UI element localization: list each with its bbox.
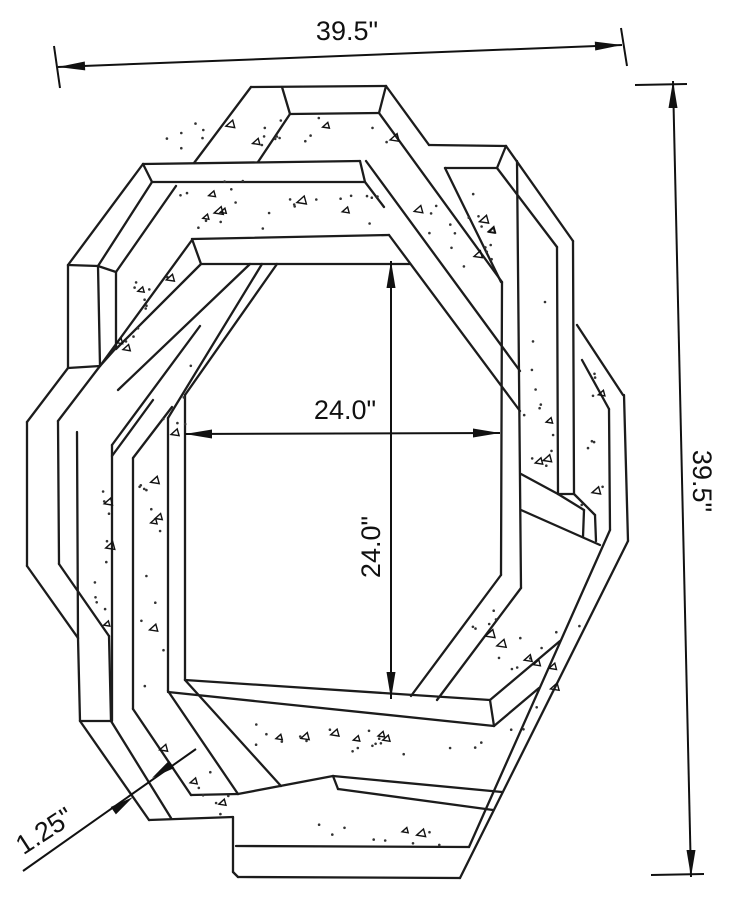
svg-text:39.5": 39.5" (687, 450, 717, 512)
svg-text:24.0": 24.0" (356, 516, 386, 578)
svg-text:39.5": 39.5" (316, 16, 378, 46)
svg-text:24.0": 24.0" (314, 395, 376, 425)
